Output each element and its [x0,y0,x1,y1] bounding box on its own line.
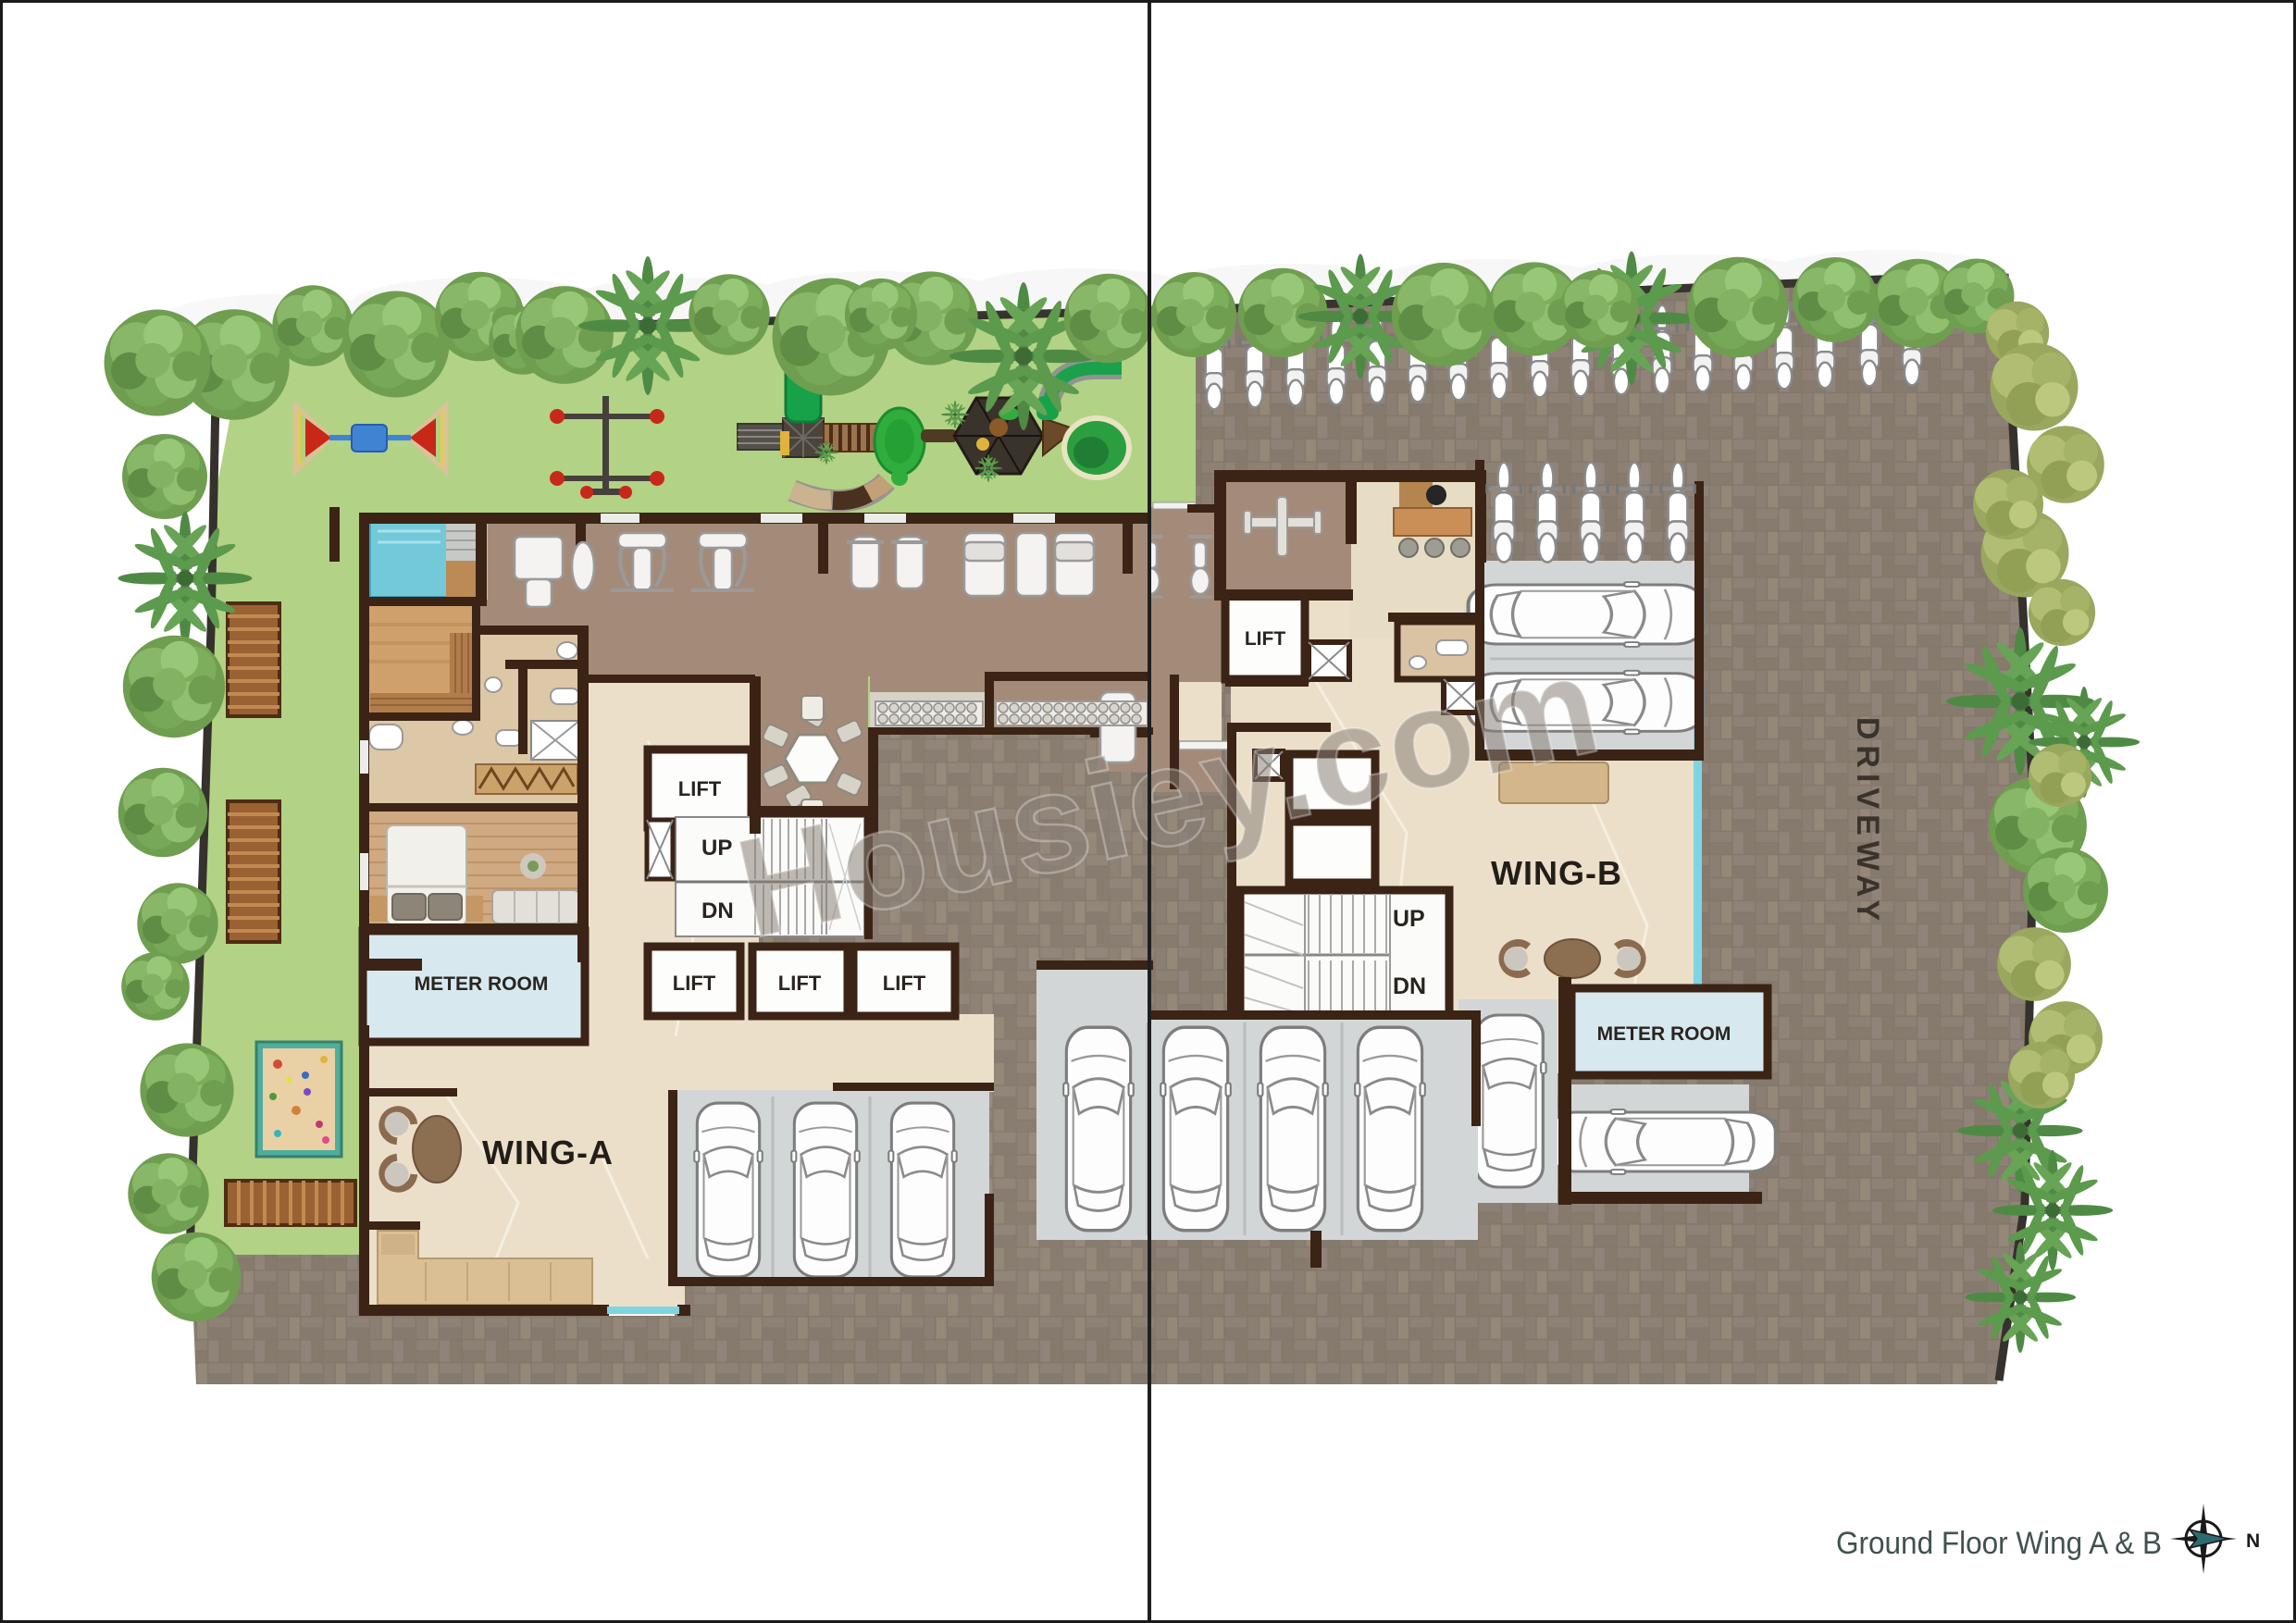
svg-text:METER ROOM: METER ROOM [415,973,549,995]
svg-text:METER ROOM: METER ROOM [1597,1023,1731,1045]
svg-text:LIFT: LIFT [883,972,926,995]
svg-text:DRIVEWAY: DRIVEWAY [1850,717,1885,926]
svg-text:LIFT: LIFT [678,777,722,800]
svg-text:N: N [2246,1530,2260,1552]
svg-text:DN: DN [1393,973,1426,999]
svg-text:WING-A: WING-A [482,1134,614,1171]
svg-text:Ground Floor Wing A & B: Ground Floor Wing A & B [1836,1526,2162,1561]
svg-text:UP: UP [1393,906,1425,932]
svg-text:LIFT: LIFT [778,972,822,995]
svg-text:WING-B: WING-B [1491,854,1622,892]
svg-text:LIFT: LIFT [673,972,716,995]
svg-text:LIFT: LIFT [1245,628,1285,650]
svg-text:UP: UP [701,836,732,861]
svg-text:DN: DN [701,898,734,923]
